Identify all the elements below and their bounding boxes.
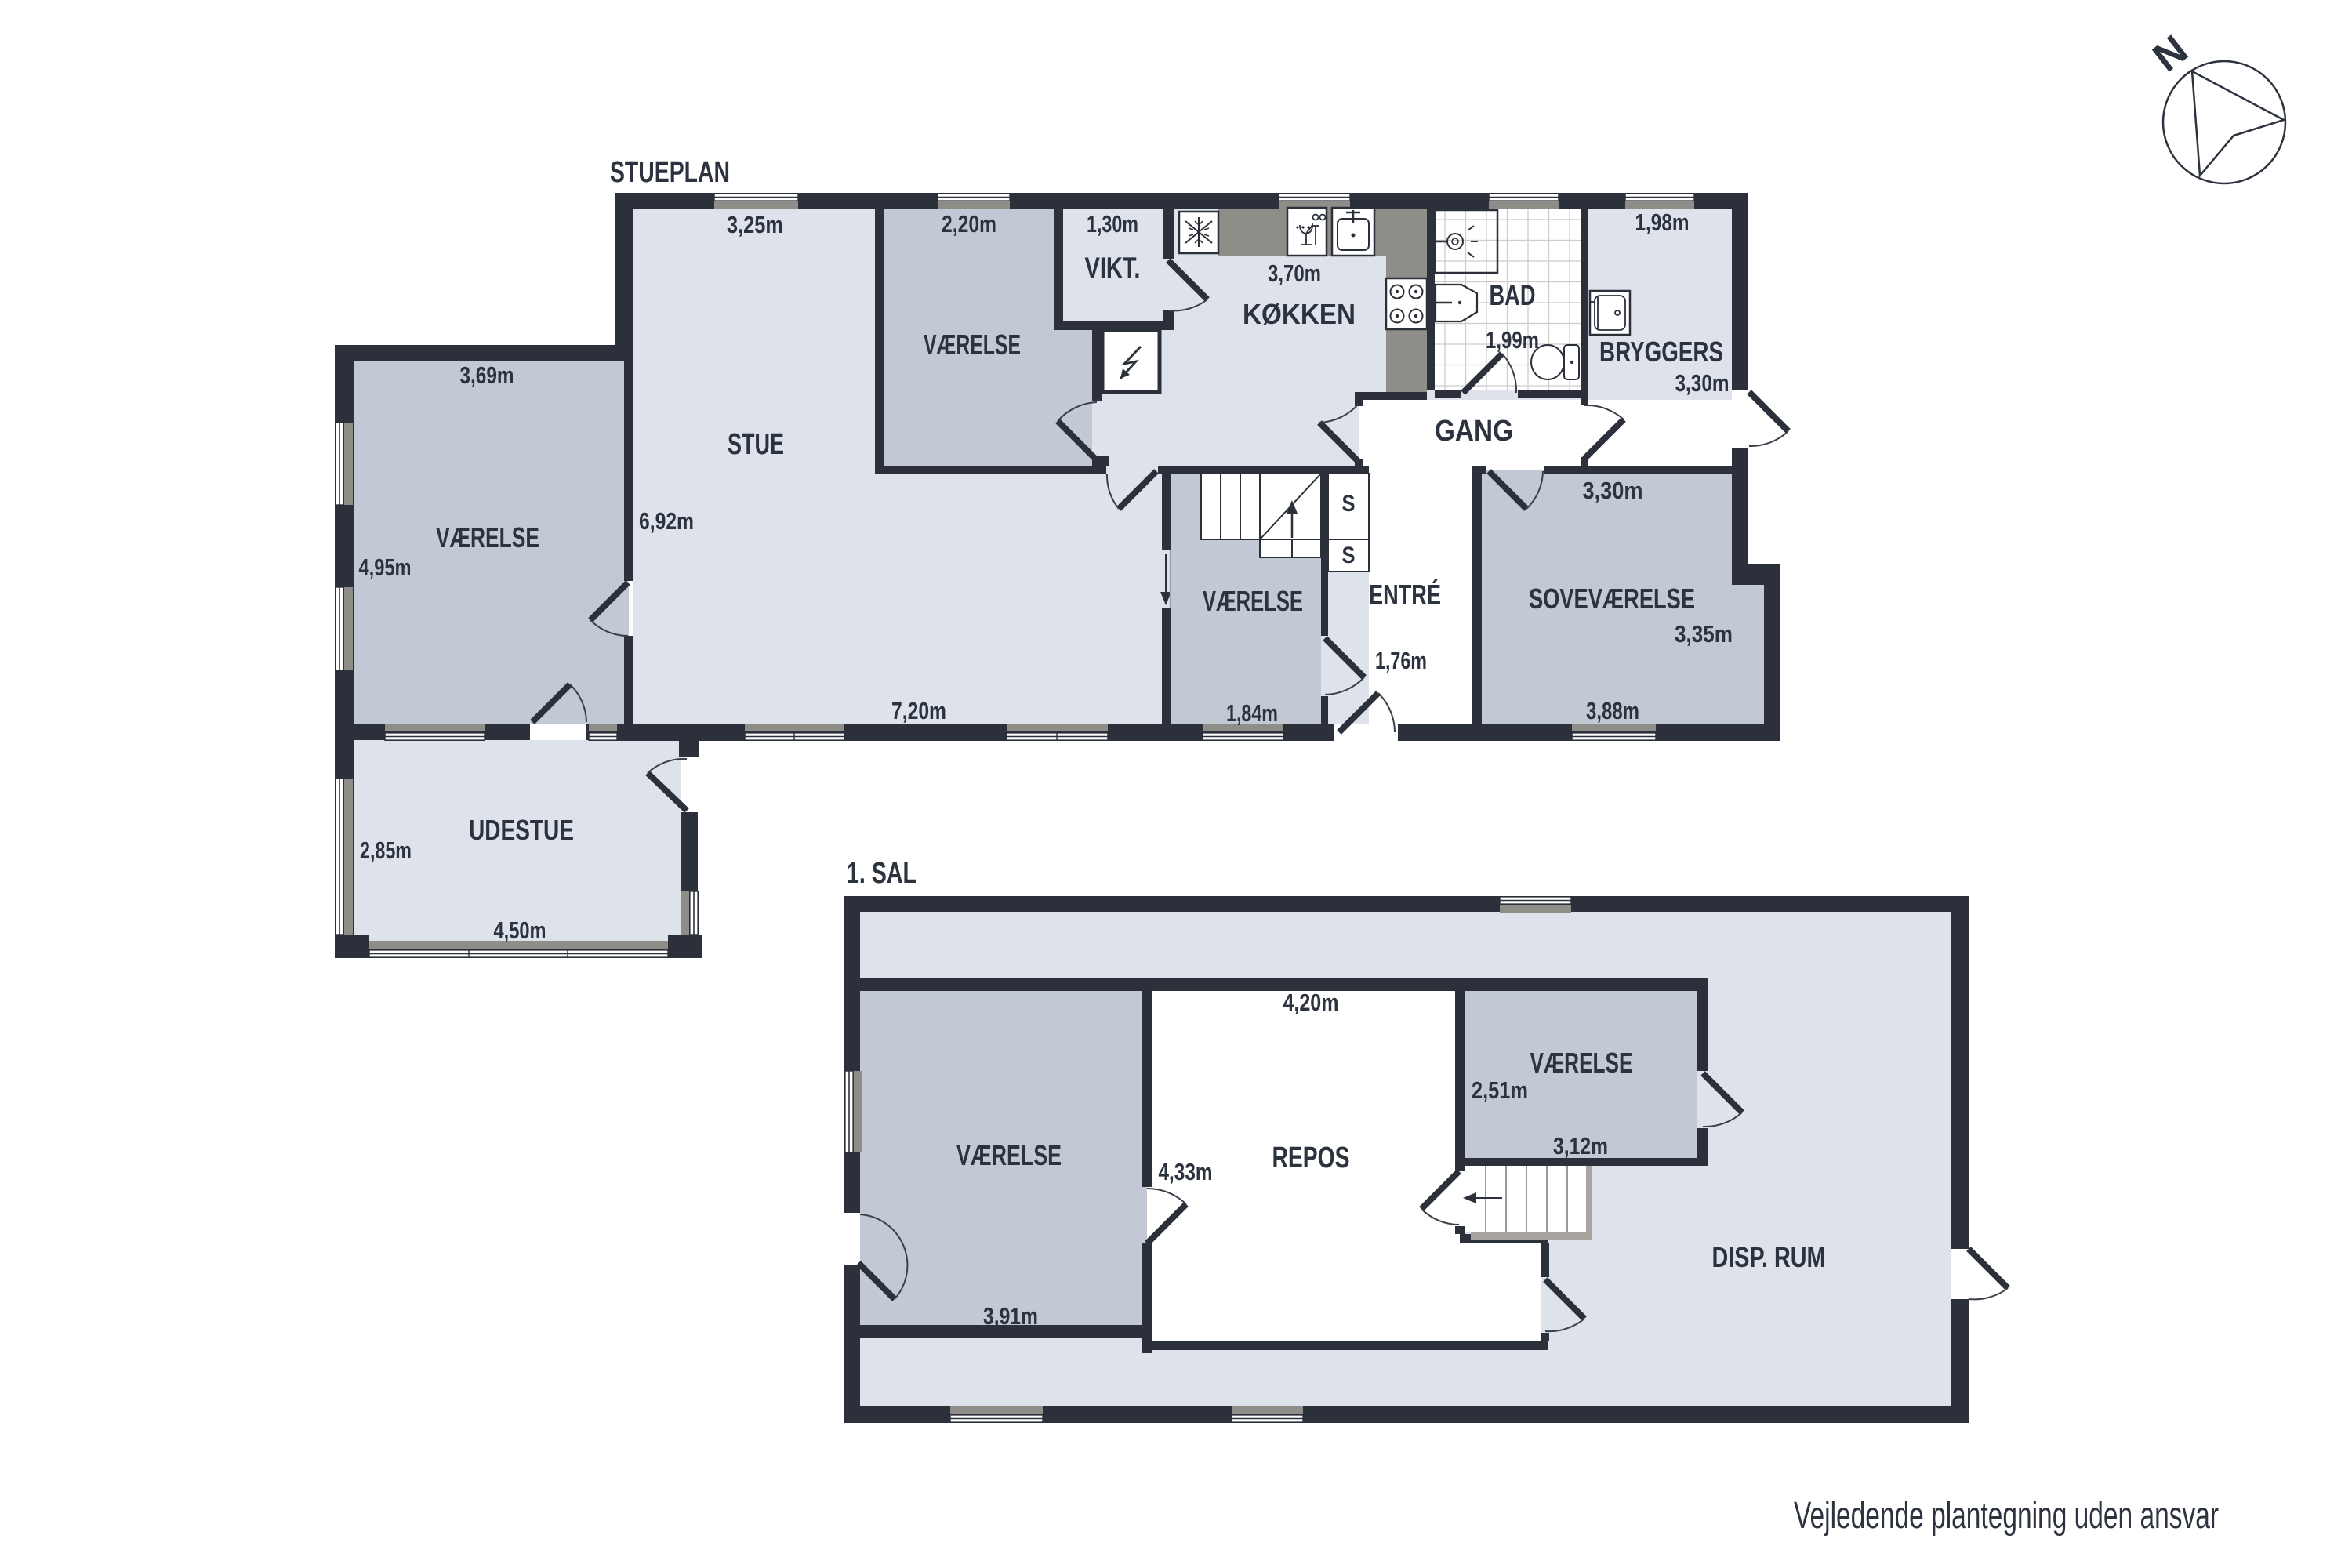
svg-text:VÆRELSE: VÆRELSE (924, 328, 1021, 361)
svg-text:S: S (1342, 543, 1356, 568)
svg-text:4,95m: 4,95m (359, 554, 412, 581)
svg-text:1,76m: 1,76m (1375, 647, 1427, 674)
svg-text:KØKKEN: KØKKEN (1243, 298, 1356, 330)
svg-text:3,69m: 3,69m (460, 361, 514, 389)
svg-text:1,84m: 1,84m (1226, 699, 1278, 727)
svg-text:3,25m: 3,25m (727, 211, 783, 238)
svg-text:4,20m: 4,20m (1283, 989, 1339, 1016)
svg-text:6,92m: 6,92m (639, 507, 694, 535)
svg-text:3,30m: 3,30m (1583, 477, 1643, 504)
svg-text:4,50m: 4,50m (494, 916, 546, 944)
svg-text:3,35m: 3,35m (1675, 620, 1733, 648)
svg-text:VÆRELSE: VÆRELSE (436, 521, 539, 554)
svg-text:3,12m: 3,12m (1553, 1132, 1608, 1160)
svg-text:1,98m: 1,98m (1635, 209, 1690, 236)
svg-text:VÆRELSE: VÆRELSE (1203, 585, 1303, 617)
svg-text:Vejledende plantegning uden an: Vejledende plantegning uden ansvar (1794, 1495, 2219, 1537)
svg-text:BAD: BAD (1490, 279, 1536, 311)
svg-text:VÆRELSE: VÆRELSE (1530, 1047, 1633, 1079)
svg-text:S: S (1342, 491, 1356, 517)
svg-text:BRYGGERS: BRYGGERS (1599, 336, 1723, 368)
svg-text:4,33m: 4,33m (1159, 1158, 1213, 1185)
svg-text:GANG: GANG (1435, 415, 1513, 448)
svg-text:UDESTUE: UDESTUE (469, 814, 574, 846)
svg-text:7,20m: 7,20m (891, 697, 946, 724)
svg-text:1. SAL: 1. SAL (847, 857, 916, 890)
svg-text:STUEPLAN: STUEPLAN (610, 156, 730, 189)
svg-text:1,99m: 1,99m (1486, 326, 1539, 354)
svg-text:SOVEVÆRELSE: SOVEVÆRELSE (1529, 583, 1695, 615)
svg-text:VIKT.: VIKT. (1085, 252, 1141, 284)
svg-text:STUE: STUE (728, 428, 784, 461)
svg-text:ENTRÉ: ENTRÉ (1369, 579, 1441, 611)
svg-text:3,88m: 3,88m (1586, 697, 1639, 724)
svg-text:1,30m: 1,30m (1087, 210, 1138, 238)
svg-text:VÆRELSE: VÆRELSE (956, 1139, 1062, 1171)
svg-text:REPOS: REPOS (1272, 1142, 1350, 1174)
svg-text:2,20m: 2,20m (942, 210, 996, 238)
svg-text:3,70m: 3,70m (1268, 260, 1321, 287)
svg-text:3,91m: 3,91m (983, 1302, 1038, 1330)
svg-text:2,85m: 2,85m (360, 837, 412, 864)
svg-text:DISP. RUM: DISP. RUM (1712, 1241, 1826, 1273)
svg-text:2,51m: 2,51m (1472, 1076, 1528, 1104)
svg-text:3,30m: 3,30m (1675, 369, 1730, 397)
